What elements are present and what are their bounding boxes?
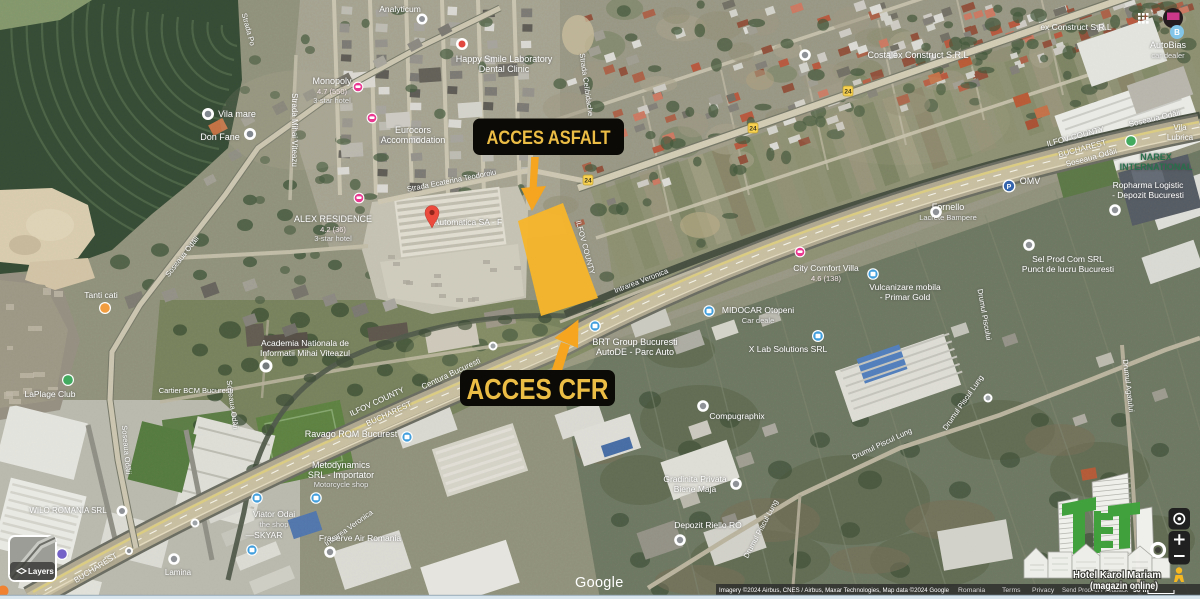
svg-text:ACCES ASFALT: ACCES ASFALT xyxy=(487,128,611,149)
svg-text:(magazin online): (magazin online) xyxy=(1090,580,1158,592)
svg-text:Layers: Layers xyxy=(28,567,54,576)
svg-text:Terms: Terms xyxy=(1002,587,1021,594)
svg-text:Google: Google xyxy=(575,575,624,591)
svg-text:Privacy: Privacy xyxy=(1032,587,1055,594)
svg-text:Romania: Romania xyxy=(958,587,985,594)
svg-text:ACCES CFR: ACCES CFR xyxy=(467,374,609,406)
svg-text:Imagery ©2024 Airbus, CNES / A: Imagery ©2024 Airbus, CNES / Airbus, Max… xyxy=(719,586,949,594)
